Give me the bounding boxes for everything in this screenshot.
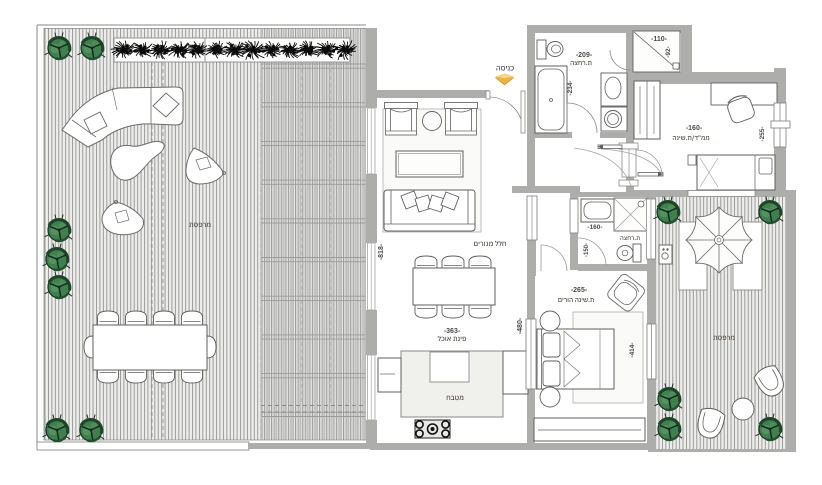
svg-text:-818-: -818-: [378, 243, 385, 260]
svg-text:-209-: -209-: [576, 52, 593, 59]
svg-text:-110-: -110-: [651, 36, 668, 43]
svg-text:-92-: -92-: [665, 46, 672, 58]
svg-text:-480-: -480-: [517, 317, 524, 334]
svg-text:-414-: -414-: [629, 342, 636, 357]
svg-text:-363-: -363-: [444, 328, 461, 335]
svg-text:-150-: -150-: [584, 243, 590, 257]
svg-text:-234-: -234-: [567, 80, 574, 95]
svg-text:-160-: -160-: [587, 224, 602, 231]
svg-text:-160-: -160-: [686, 125, 703, 132]
svg-text:-255-: -255-: [759, 126, 766, 141]
svg-text:-265-: -265-: [571, 287, 588, 294]
